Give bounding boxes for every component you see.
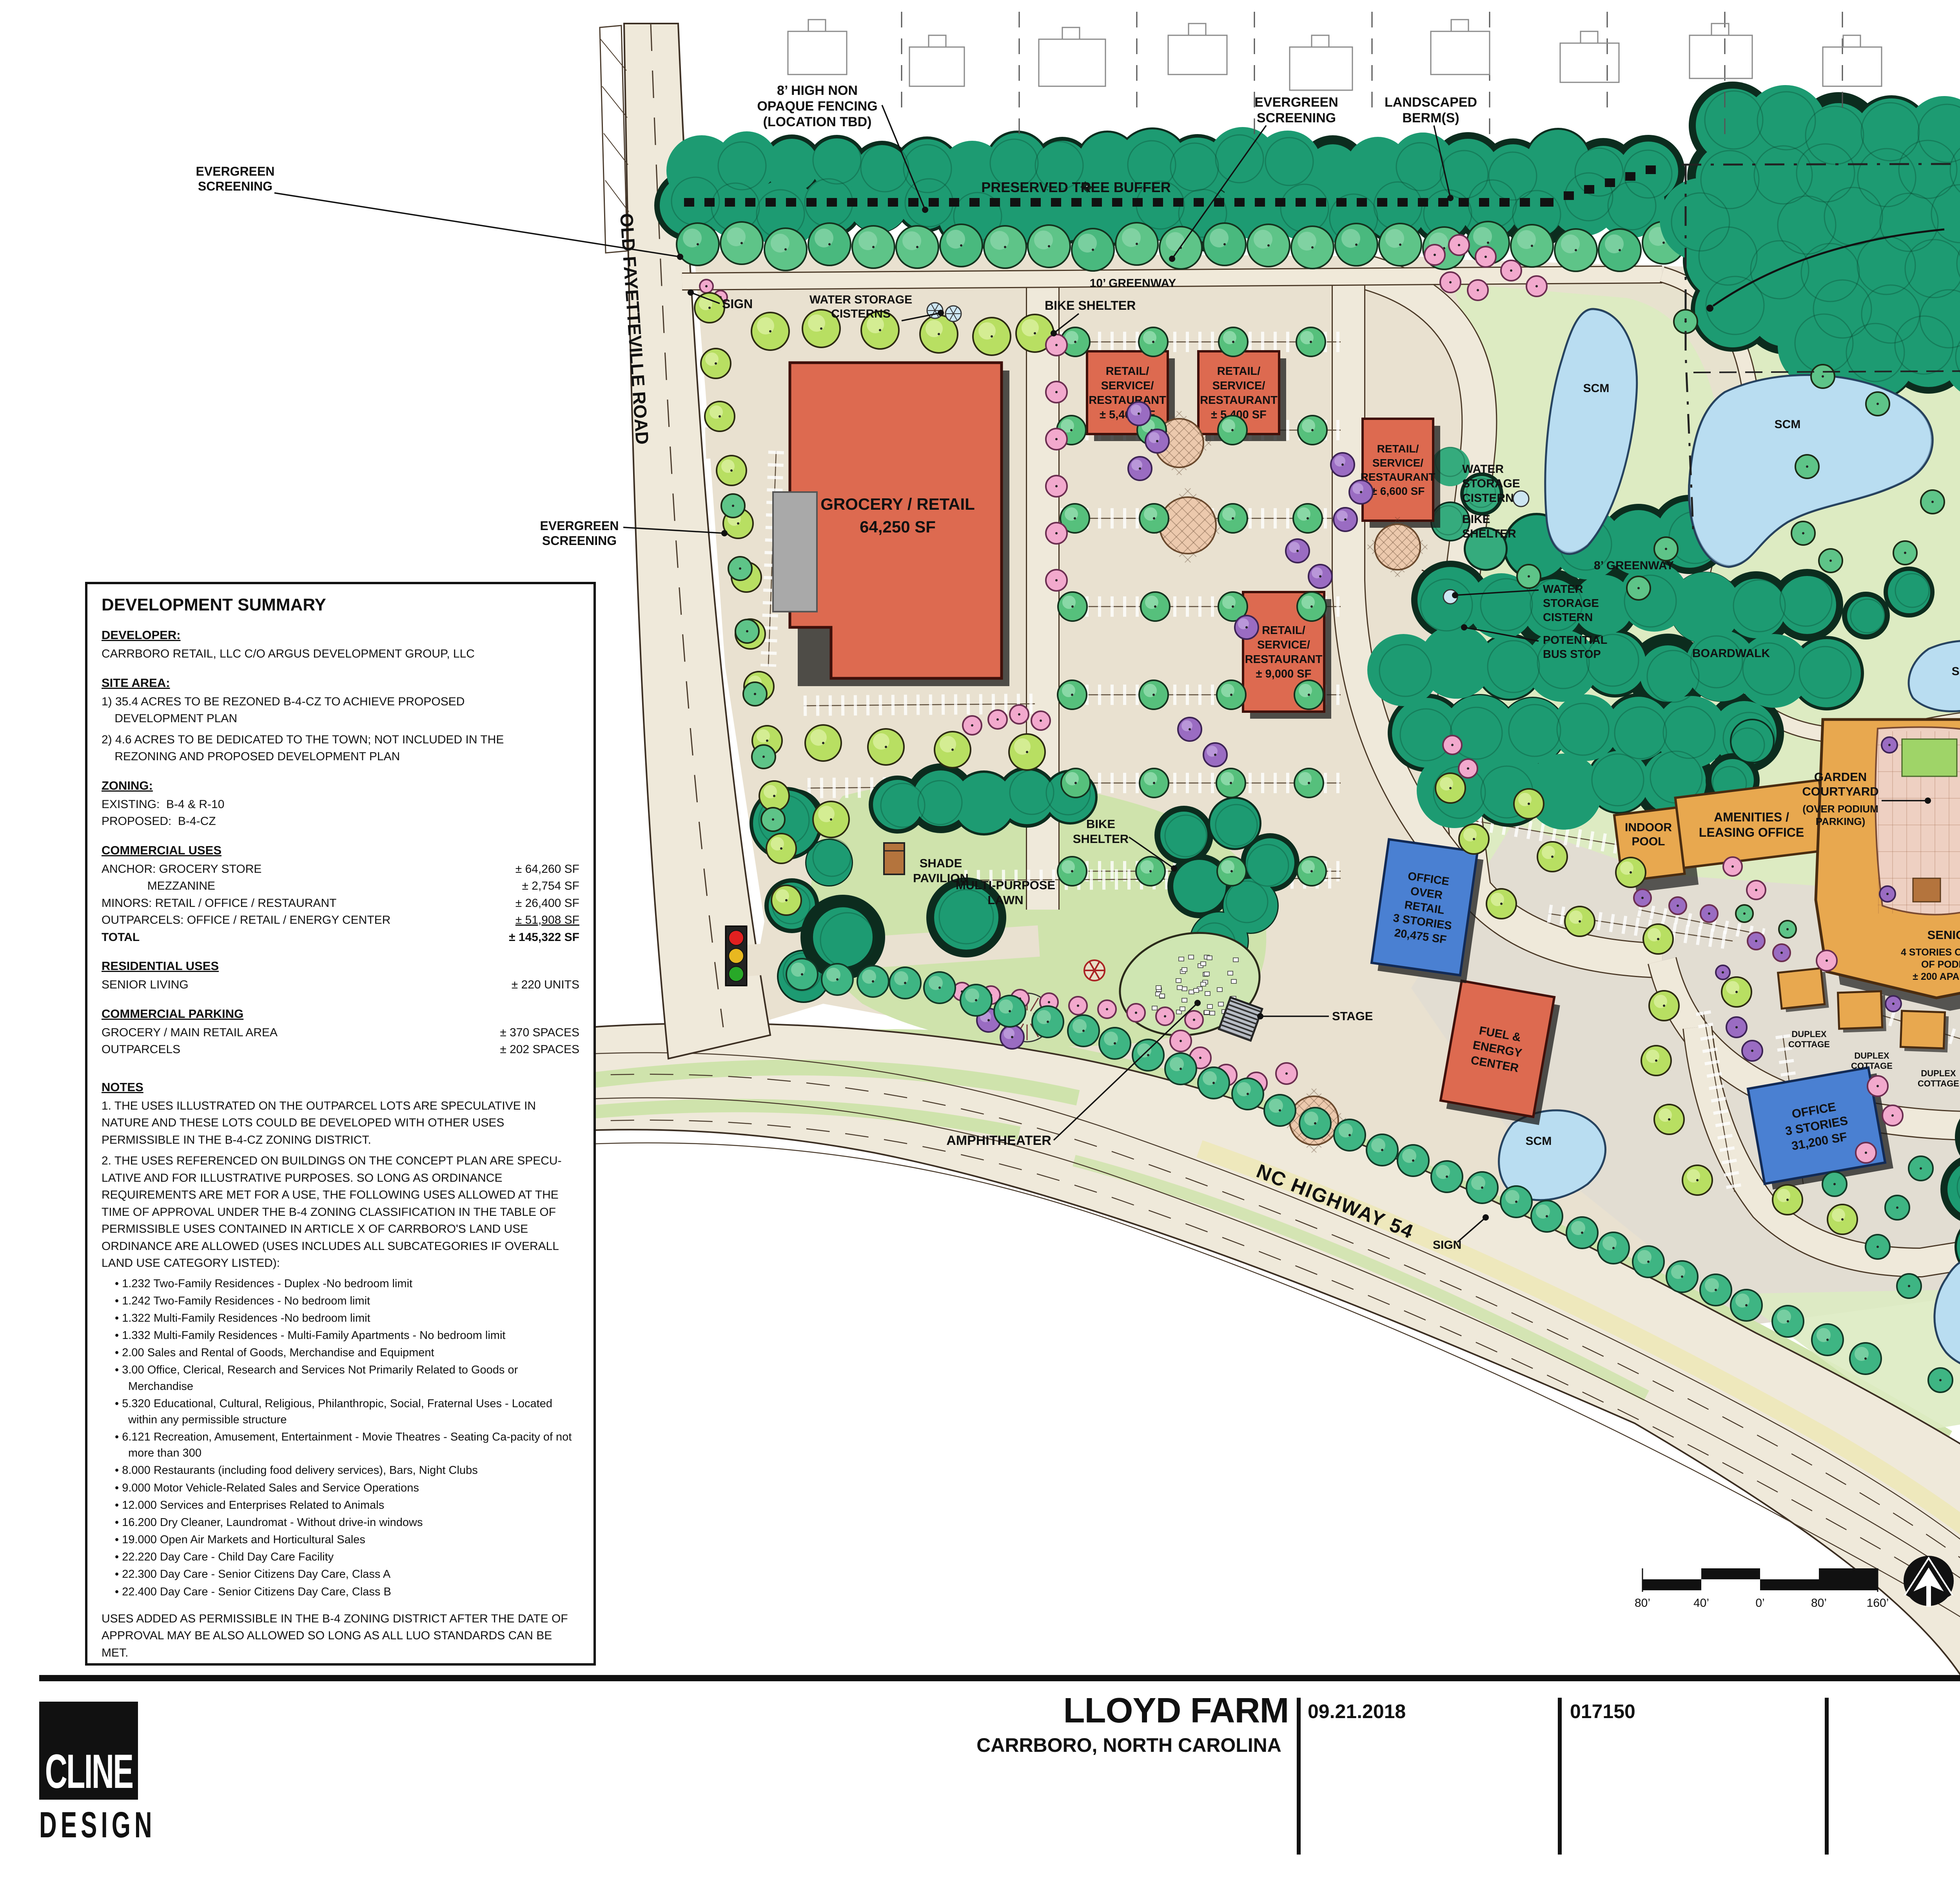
svg-text:BIKE SHELTER: BIKE SHELTER bbox=[1045, 298, 1136, 312]
svg-text:SIGN: SIGN bbox=[722, 297, 753, 311]
svg-text:0’: 0’ bbox=[1755, 1597, 1764, 1610]
svg-text:PRESERVED TREE BUFFER: PRESERVED TREE BUFFER bbox=[981, 179, 1171, 195]
svg-text:8’ GREENWAY: 8’ GREENWAY bbox=[1594, 559, 1674, 572]
svg-text:80’: 80’ bbox=[1811, 1597, 1827, 1610]
svg-text:80’: 80’ bbox=[1635, 1597, 1650, 1610]
svg-text:SCM: SCM bbox=[1775, 418, 1801, 431]
svg-text:DUPLEXCOTTAGE: DUPLEXCOTTAGE bbox=[1918, 1068, 1959, 1088]
svg-text:SENIOR LIVING: SENIOR LIVING bbox=[1927, 928, 1960, 942]
svg-text:SCM: SCM bbox=[1526, 1135, 1552, 1148]
svg-text:SCM: SCM bbox=[1952, 665, 1960, 678]
svg-text:DUPLEXCOTTAGE: DUPLEXCOTTAGE bbox=[1851, 1051, 1893, 1071]
svg-text:40’: 40’ bbox=[1693, 1597, 1709, 1610]
svg-text:DUPLEXCOTTAGE: DUPLEXCOTTAGE bbox=[1788, 1029, 1830, 1049]
svg-text:160’: 160’ bbox=[1867, 1597, 1889, 1610]
svg-text:BOARDWALK: BOARDWALK bbox=[1692, 647, 1770, 660]
svg-text:AMPHITHEATER: AMPHITHEATER bbox=[946, 1133, 1051, 1148]
svg-text:10’ GREENWAY: 10’ GREENWAY bbox=[1090, 277, 1176, 290]
svg-text:SIGN: SIGN bbox=[1433, 1239, 1461, 1252]
svg-text:SCM: SCM bbox=[1583, 382, 1610, 395]
svg-text:STAGE: STAGE bbox=[1332, 1009, 1373, 1023]
